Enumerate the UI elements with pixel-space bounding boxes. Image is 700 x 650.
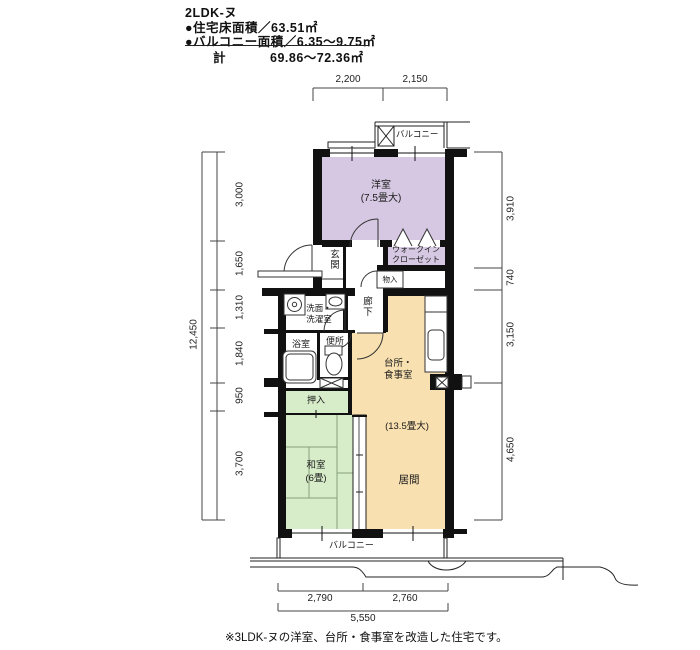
floor-plan-page: 2LDK-ヌ ●住宅床面積／63.51㎡ ●バルコニー面積／6.35〜9.75㎡… bbox=[0, 0, 700, 650]
dim-left-total: 12,450 bbox=[189, 305, 200, 365]
floor-plan-drawing bbox=[0, 0, 700, 650]
label-ldk-size: (13.5畳大) bbox=[378, 421, 436, 433]
label-balcony-top: バルコニー bbox=[396, 128, 438, 140]
label-washitsu: 和室 (6畳) bbox=[290, 459, 342, 485]
dim-bottom-total: 5,550 bbox=[333, 613, 393, 624]
footer-note: ※3LDK-ヌの洋室、台所・食事室を改造した住宅です。 bbox=[225, 629, 508, 645]
label-benjo: 便所 bbox=[320, 335, 350, 347]
dim-left-0: 3,000 bbox=[235, 165, 246, 225]
dim-top-1: 2,150 bbox=[385, 74, 445, 85]
label-rouka: 廊下 bbox=[360, 296, 372, 317]
mononoire-door-arc bbox=[361, 271, 377, 287]
western-room-size: (7.5畳大) bbox=[326, 192, 436, 205]
label-genkan: 玄関 bbox=[327, 249, 339, 270]
label-walkin-closet: ウォークイン クローゼット bbox=[386, 245, 446, 264]
dim-left-4: 950 bbox=[235, 366, 246, 426]
toilet-bowl bbox=[326, 353, 342, 375]
label-living: 居間 bbox=[394, 474, 424, 486]
label-oshiire: 押入 bbox=[296, 394, 336, 406]
dim-left-5: 3,700 bbox=[235, 434, 246, 494]
label-kitchen-dining: 台所・ 食事室 bbox=[384, 358, 426, 382]
fusuma-sliding-doors bbox=[353, 415, 366, 531]
dim-right-3: 4,650 bbox=[506, 420, 517, 480]
break-line bbox=[600, 567, 638, 585]
dim-right-1: 740 bbox=[506, 248, 517, 308]
dim-bottom-1: 2,760 bbox=[375, 593, 435, 604]
dim-bottom-0: 2,790 bbox=[290, 593, 350, 604]
label-balcony-bottom: バルコニー bbox=[329, 539, 374, 551]
dim-right-0: 3,910 bbox=[506, 179, 517, 239]
label-yokushitsu: 浴室 bbox=[284, 338, 318, 350]
label-western-room: 洋室 (7.5畳大) bbox=[326, 179, 436, 205]
kitchen-sink bbox=[428, 330, 444, 360]
entry-step bbox=[258, 271, 322, 277]
label-mononoire: 物入 bbox=[377, 274, 403, 286]
western-room-name: 洋室 bbox=[326, 179, 436, 192]
entrance-door-arc bbox=[284, 245, 312, 273]
label-senmen: 洗面・ 洗濯室 bbox=[295, 303, 343, 324]
dim-right-2: 3,150 bbox=[506, 305, 517, 365]
dim-top-0: 2,200 bbox=[318, 74, 378, 85]
balcony-bottom-structure bbox=[250, 538, 638, 585]
